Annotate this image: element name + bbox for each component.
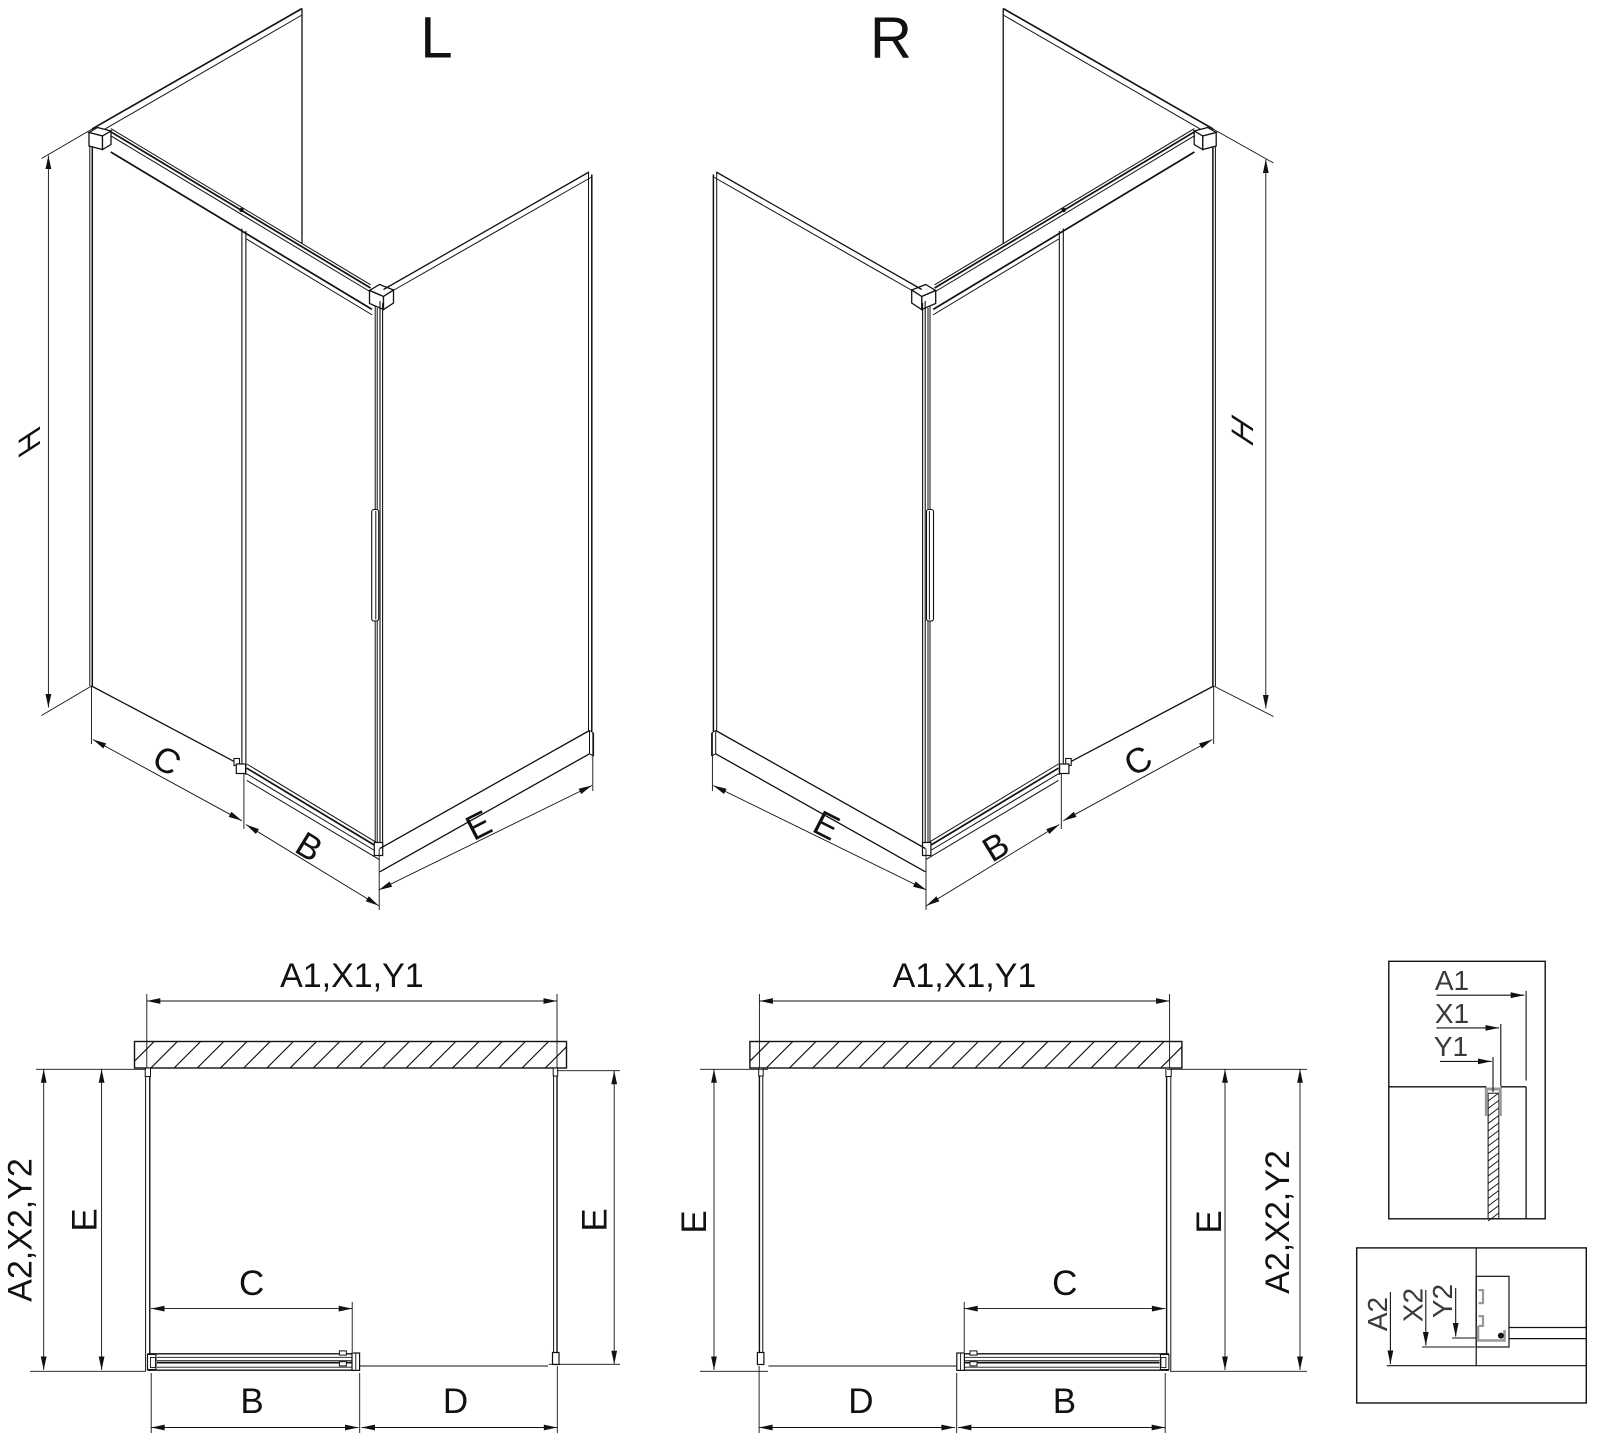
svg-text:A2,X2,Y2: A2,X2,Y2 — [2, 1158, 40, 1302]
svg-text:E: E — [576, 1208, 615, 1231]
svg-text:E: E — [65, 1208, 104, 1231]
svg-text:E: E — [1190, 1210, 1229, 1233]
svg-text:A1: A1 — [1435, 965, 1469, 996]
svg-text:C: C — [1052, 1264, 1077, 1303]
svg-text:E: E — [675, 1210, 714, 1233]
svg-text:A2,X2,Y2: A2,X2,Y2 — [1259, 1150, 1297, 1294]
svg-text:B: B — [1053, 1382, 1076, 1421]
svg-text:A1,X1,Y1: A1,X1,Y1 — [280, 957, 424, 995]
svg-text:Y2: Y2 — [1427, 1284, 1458, 1318]
svg-text:R: R — [870, 6, 912, 71]
svg-text:D: D — [443, 1382, 468, 1421]
svg-text:Y1: Y1 — [1434, 1031, 1468, 1062]
svg-text:X1: X1 — [1435, 998, 1469, 1029]
svg-text:B: B — [240, 1382, 263, 1421]
svg-text:A1,X1,Y1: A1,X1,Y1 — [893, 957, 1037, 995]
svg-text:X2: X2 — [1398, 1288, 1429, 1322]
svg-text:A2: A2 — [1362, 1297, 1393, 1331]
svg-text:C: C — [239, 1264, 264, 1303]
svg-text:L: L — [420, 6, 452, 71]
svg-text:D: D — [848, 1382, 873, 1421]
